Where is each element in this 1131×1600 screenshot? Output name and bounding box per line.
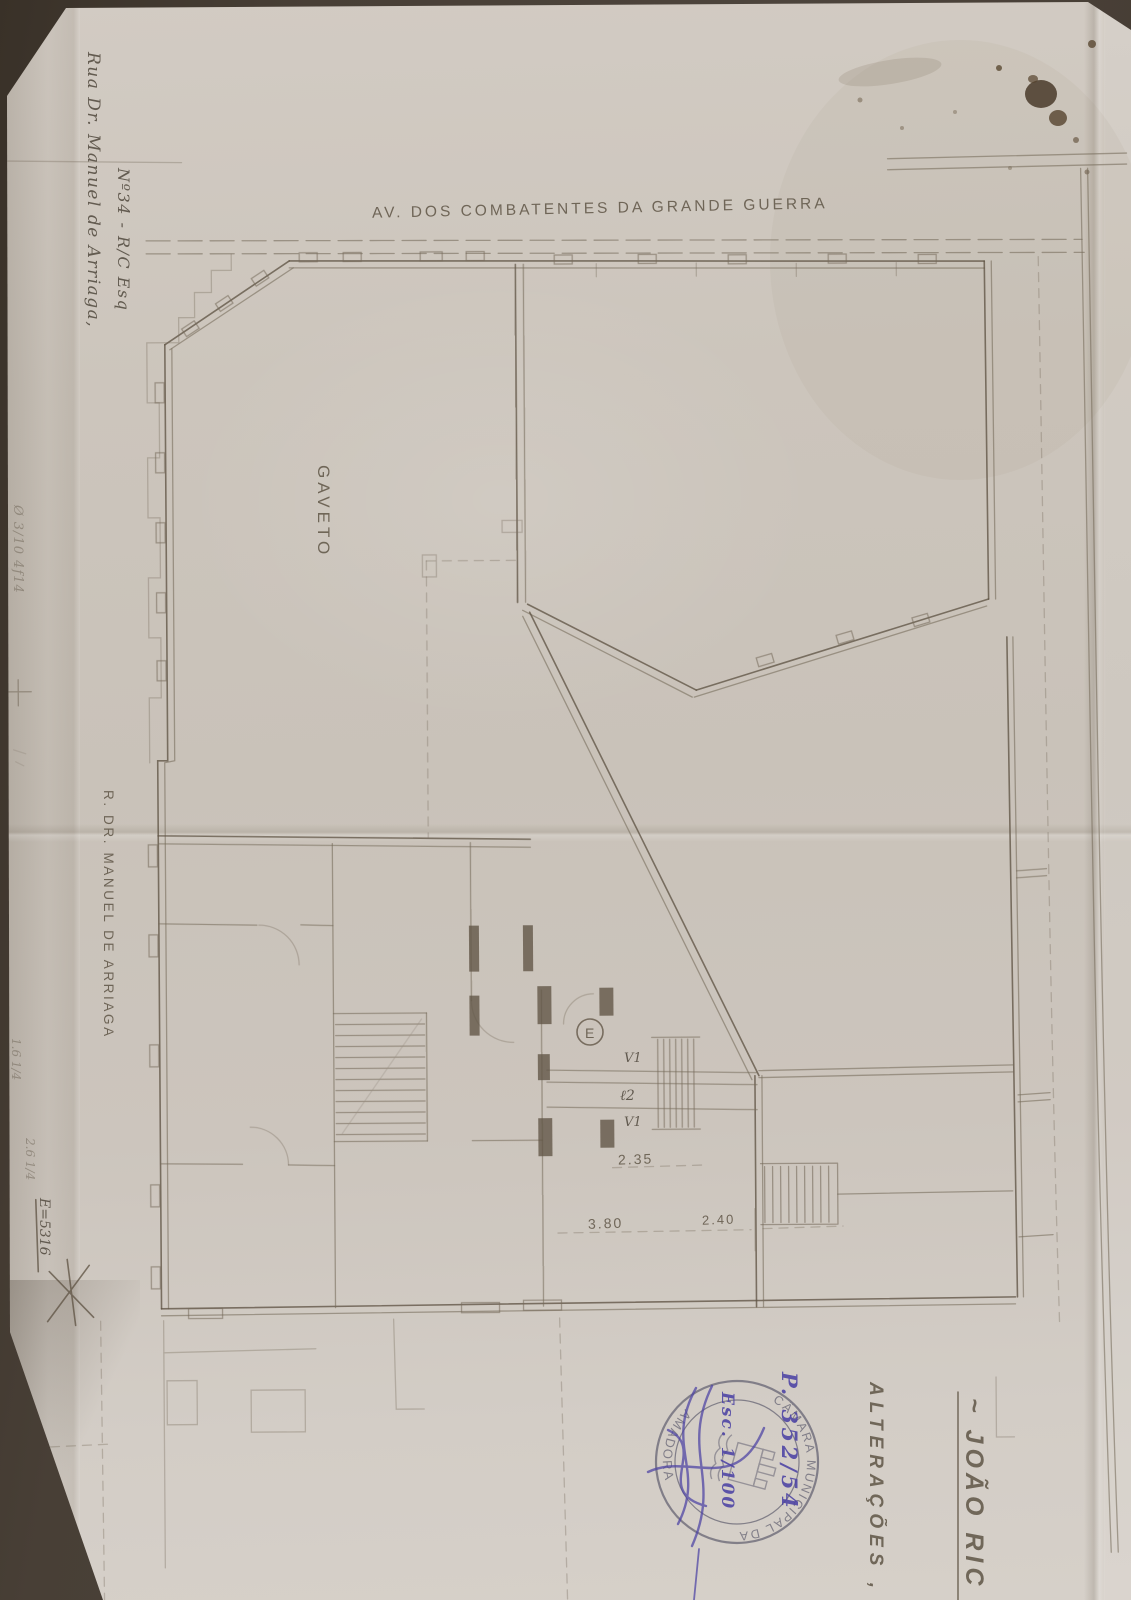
stair-right xyxy=(761,1163,838,1225)
level-label-l2: ℓ2 xyxy=(620,1088,635,1104)
street-label-left: R. DR. MANUEL DE ARRIAGA xyxy=(101,790,116,1039)
owner-title: ~ JOÃO RIC xyxy=(960,1398,990,1590)
central-wall xyxy=(420,264,527,837)
stair-left xyxy=(336,1019,426,1135)
entrance-label: E xyxy=(585,1025,594,1041)
address-note-line1: Rua Dr. Manuel de Arriaga, xyxy=(83,51,103,328)
paper-sheet: AV. DOS COMBATENTES DA GRANDE GUERRA GAV… xyxy=(0,0,1131,1600)
street-label-top: AV. DOS COMBATENTES DA GRANDE GUERRA xyxy=(372,195,828,222)
paper-stains xyxy=(770,40,1131,480)
grade-note-2: 2.6 1/4 xyxy=(23,1137,37,1180)
corner-steps xyxy=(146,254,235,763)
scanned-blueprint-photo: AV. DOS COMBATENTES DA GRANDE GUERRA GAV… xyxy=(0,0,1131,1600)
margin-note: Ø 3/10 4f14 xyxy=(10,504,25,594)
blue-annotations: P. 352/54 Esc. 1/100 xyxy=(717,1371,802,1511)
stamp-arc-bottom: AMADORA xyxy=(652,1404,696,1486)
project-type-label: ALTERAÇÕES , xyxy=(865,1381,887,1594)
stamp-process-number: P. 352/54 xyxy=(777,1371,802,1511)
stamp-scale-note: Esc. 1/100 xyxy=(717,1391,737,1510)
interior-walls xyxy=(158,830,1053,1311)
handwritten-notes: Rua Dr. Manuel de Arriaga, Nº34 - R/C Es… xyxy=(9,51,133,1256)
address-note-line2: Nº34 - R/C Esq xyxy=(114,167,133,311)
dimension-3-80: 3.80 xyxy=(588,1215,624,1232)
dimension-2-40: 2.40 xyxy=(702,1212,736,1228)
grade-note-1: 1.6 1/4 xyxy=(9,1038,23,1080)
corner-label: GAVETO xyxy=(314,465,333,558)
plan-lettering: AV. DOS COMBATENTES DA GRANDE GUERRA GAV… xyxy=(101,195,828,1232)
margin-ticks xyxy=(5,680,32,766)
signature-scribble xyxy=(648,1386,764,1600)
window-label-v1-upper: V1 xyxy=(624,1051,642,1066)
svg-text:AMADORA: AMADORA xyxy=(652,1404,696,1486)
window-label-v1-lower: V1 xyxy=(624,1115,642,1130)
dimension-2-35: 2.35 xyxy=(618,1150,654,1167)
title-block: ~ JOÃO RIC ALTERAÇÕES , xyxy=(865,1381,990,1600)
floorplan-drawing: AV. DOS COMBATENTES DA GRANDE GUERRA GAV… xyxy=(0,0,1131,1600)
ref-note: E=5316 xyxy=(36,1197,52,1256)
